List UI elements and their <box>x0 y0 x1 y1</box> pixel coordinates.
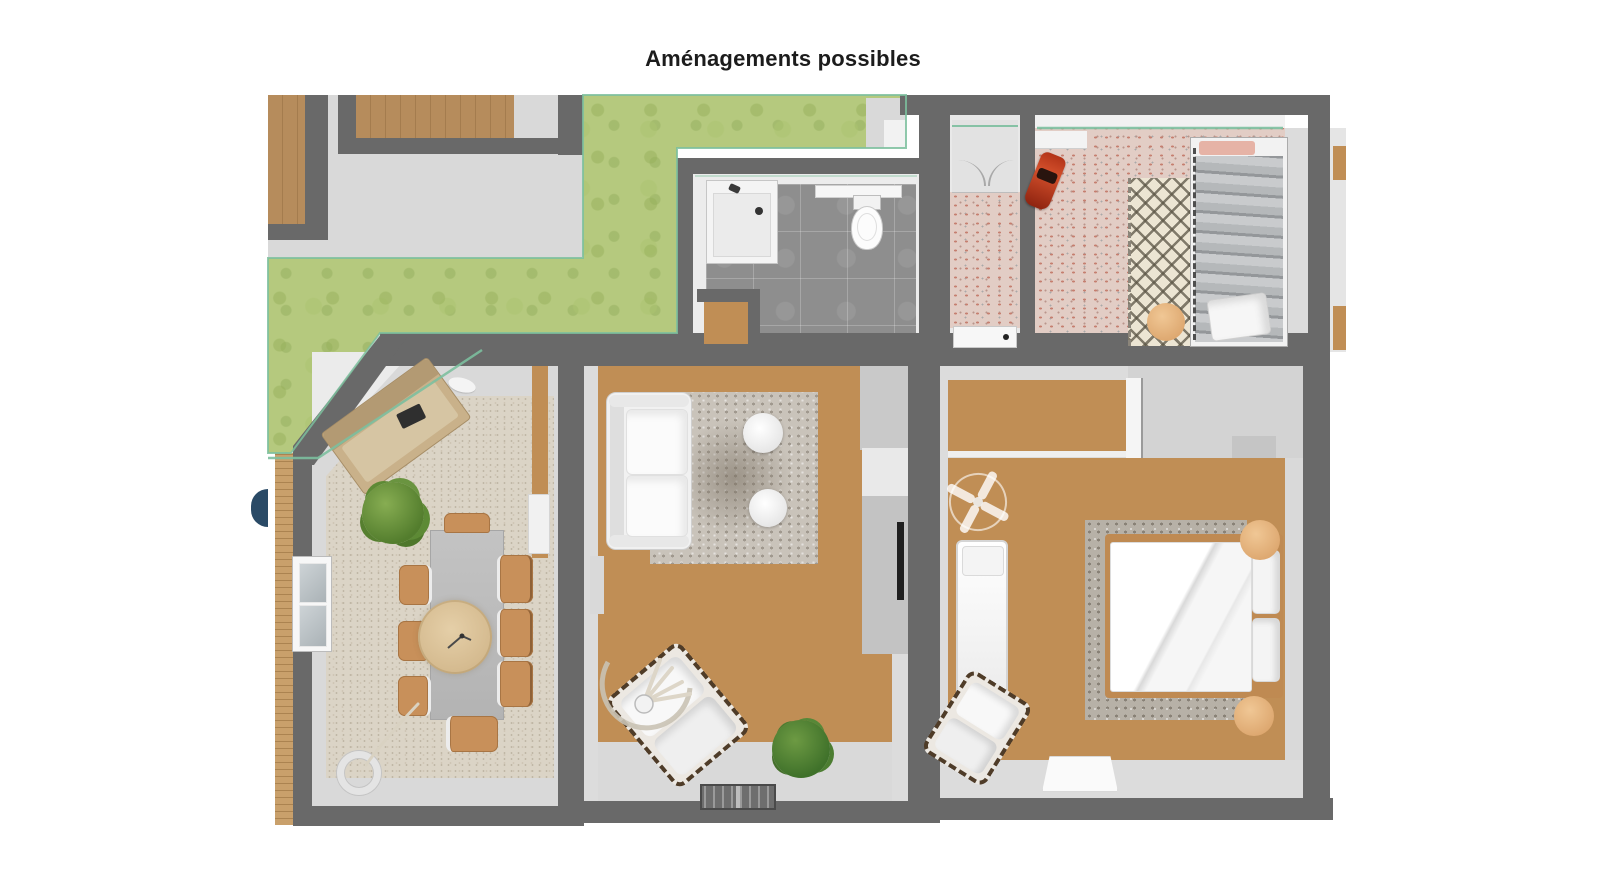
sofa-armrest <box>609 395 689 407</box>
living-side-table <box>749 489 787 527</box>
sofa-back <box>610 399 624 543</box>
dining-chair <box>497 555 533 603</box>
dining-plant <box>362 482 424 544</box>
dining-chair <box>497 609 533 657</box>
kids-pouf <box>1147 303 1185 341</box>
bedroom-bench-mat <box>1042 756 1118 792</box>
window-pane <box>299 605 327 647</box>
window-pane <box>299 563 327 603</box>
sofa-cushion <box>626 409 688 475</box>
doormat <box>700 784 776 810</box>
floor-plan-page: Aménagements possibles <box>0 0 1600 871</box>
bedside-pouf <box>1240 520 1280 560</box>
daybed-pillow <box>962 546 1004 576</box>
tv-cabinet-top <box>862 448 908 496</box>
wardrobe-door-arc <box>958 160 986 186</box>
sofa-cushion <box>626 475 688 537</box>
dining-window <box>292 556 332 652</box>
dining-pendant-lamp <box>418 600 492 674</box>
shower-tray-inner <box>713 193 771 257</box>
kids-bed-pillow <box>1206 292 1271 342</box>
kids-bed <box>1190 137 1288 347</box>
living-plant <box>772 720 830 778</box>
kids-bed-guard-rail <box>1193 148 1196 340</box>
dining-chair <box>398 676 431 716</box>
washer-knob-icon <box>1003 334 1009 340</box>
kids-wall-shelf <box>1035 131 1087 149</box>
dining-chair <box>446 716 498 752</box>
bathroom-nook-floor <box>704 302 748 344</box>
tv-screen <box>897 522 904 600</box>
tv-cabinet <box>862 448 908 654</box>
living-sofa <box>606 392 692 550</box>
dining-chair <box>444 513 490 533</box>
doormat-divider <box>736 786 740 808</box>
toilet-seat-line <box>857 213 877 241</box>
bed-pillow <box>1252 618 1280 682</box>
dining-floor-lamp <box>337 751 381 795</box>
bedside-pouf <box>1234 696 1274 736</box>
laundry-wardrobe <box>952 120 1018 193</box>
double-bed-duvet <box>1110 542 1252 692</box>
toilet-bowl <box>851 206 883 250</box>
shower-drain-icon <box>755 207 763 215</box>
shower-tray <box>706 180 778 264</box>
washing-machine <box>953 326 1017 348</box>
living-side-table <box>743 413 783 453</box>
dining-white-cabinet <box>528 494 550 554</box>
kids-bed-pink-pillow <box>1199 141 1255 155</box>
dining-chair <box>497 661 533 707</box>
dining-chair <box>399 565 432 605</box>
toy-car-windshield <box>1036 167 1059 185</box>
wardrobe-door-arc <box>988 160 1014 186</box>
